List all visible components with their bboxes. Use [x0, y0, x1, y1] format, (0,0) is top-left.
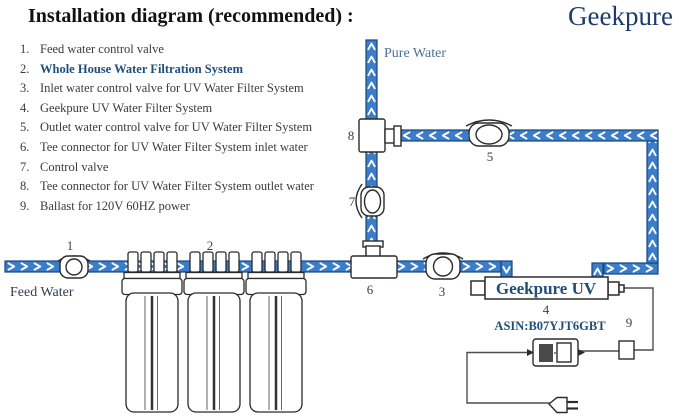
- filter-housing-3: [246, 252, 306, 412]
- ballast-display-light: [557, 343, 571, 362]
- riser-pipe: [647, 141, 658, 263]
- uv-right-cap: [608, 282, 619, 295]
- ballast-display-dark: [539, 344, 553, 362]
- diagram-label-1: 1: [67, 238, 74, 253]
- pure-water-outlet-pipe: [366, 40, 377, 121]
- diagram-label-7: 7: [349, 194, 356, 209]
- uv-right-nub: [619, 285, 624, 292]
- whole-house-filter-housings: [122, 252, 306, 412]
- ballast-unit: [527, 339, 634, 366]
- filter-housing-2: [184, 252, 244, 412]
- asin-label: ASIN:B07YJT6GBT: [494, 319, 606, 333]
- uv-inlet-valve-3: [423, 253, 463, 279]
- plug-body: [549, 398, 567, 413]
- diagram-label-4: 4: [543, 302, 550, 317]
- pure-water-label: Pure Water: [384, 46, 446, 61]
- uv-unit-label: Geekpure UV: [496, 279, 597, 298]
- uv-left-cap: [471, 281, 485, 295]
- control-valve-7: [356, 184, 384, 218]
- ballast-dot: [554, 352, 556, 354]
- diagram-label-2: 2: [207, 238, 214, 253]
- top-return-pipe: [400, 130, 658, 141]
- power-plug: [549, 398, 578, 413]
- uv-chamber: Geekpure UV: [471, 277, 624, 299]
- cable-arrow-right: [578, 349, 585, 356]
- pipes: [5, 40, 658, 280]
- filter-housing-1: [122, 252, 182, 412]
- feed-water-label: Feed Water: [10, 285, 74, 300]
- diagram-label-8: 8: [348, 128, 355, 143]
- installation-diagram: Geekpure UV Pure Water Feed Water ASIN:B…: [0, 0, 679, 418]
- bottom-right-pipe: [604, 263, 658, 274]
- feed-control-valve-1: [58, 256, 90, 278]
- diagram-label-3: 3: [439, 284, 446, 299]
- tee-connector-6: [351, 241, 397, 278]
- diagram-label-5: 5: [487, 149, 494, 164]
- uv-outlet-valve-5: [466, 120, 512, 146]
- cable-connector: [619, 341, 634, 359]
- page: Installation diagram (recommended) : Gee…: [0, 0, 679, 418]
- diagram-label-9: 9: [626, 315, 633, 330]
- diagram-label-6: 6: [367, 282, 374, 297]
- tee-connector-8: [359, 119, 401, 152]
